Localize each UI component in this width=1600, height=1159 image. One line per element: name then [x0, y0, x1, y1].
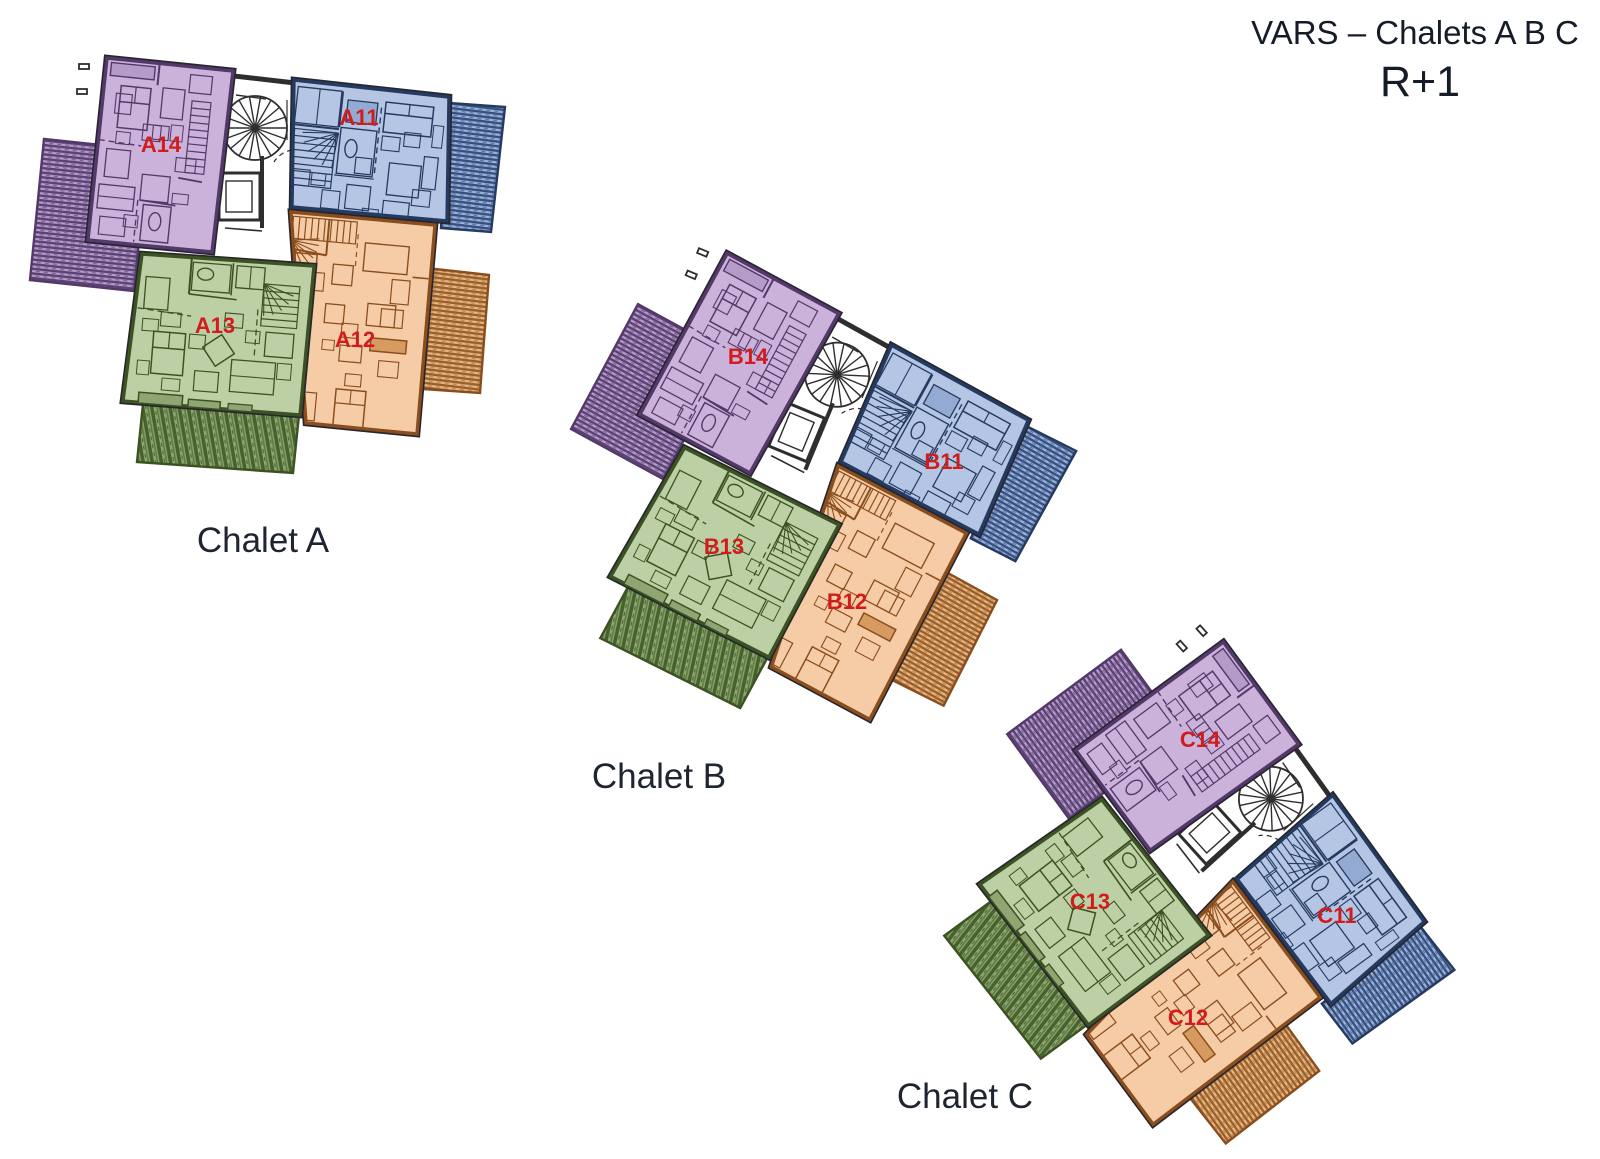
svg-text:B14: B14	[728, 344, 769, 369]
svg-text:B13: B13	[704, 534, 744, 559]
svg-text:C12: C12	[1168, 1005, 1208, 1030]
svg-text:Chalet C: Chalet C	[897, 1077, 1033, 1116]
svg-text:A13: A13	[195, 313, 235, 338]
svg-text:VARS – Chalets A B C: VARS – Chalets A B C	[1251, 14, 1579, 51]
svg-text:C11: C11	[1317, 903, 1356, 928]
svg-text:B12: B12	[827, 589, 867, 614]
svg-text:B11: B11	[924, 449, 963, 474]
svg-text:A14: A14	[141, 132, 182, 157]
svg-text:A11: A11	[339, 105, 378, 130]
svg-text:A12: A12	[335, 327, 375, 352]
svg-text:R+1: R+1	[1380, 58, 1460, 106]
svg-text:C14: C14	[1180, 727, 1221, 752]
svg-text:C13: C13	[1070, 889, 1110, 914]
svg-text:Chalet A: Chalet A	[197, 521, 330, 560]
svg-text:Chalet B: Chalet B	[592, 757, 726, 796]
